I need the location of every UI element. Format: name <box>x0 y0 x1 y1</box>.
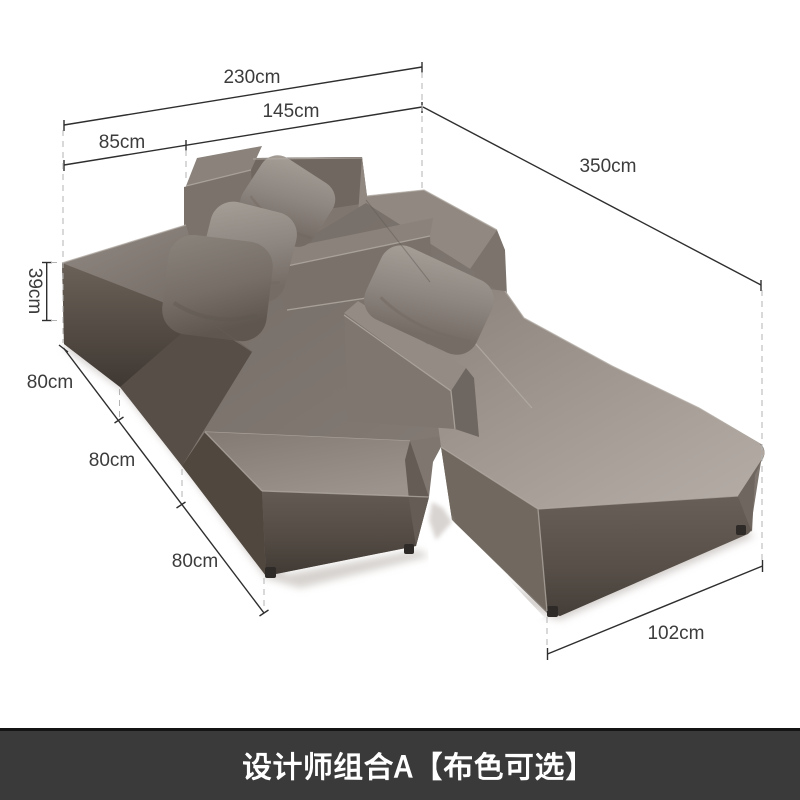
svg-text:102cm: 102cm <box>647 623 704 644</box>
svg-text:230cm: 230cm <box>223 67 280 88</box>
svg-text:350cm: 350cm <box>579 156 636 177</box>
svg-text:85cm: 85cm <box>99 132 145 153</box>
svg-text:80cm: 80cm <box>172 551 218 572</box>
svg-text:80cm: 80cm <box>89 450 135 471</box>
svg-text:39cm: 39cm <box>24 268 45 314</box>
svg-text:80cm: 80cm <box>27 372 73 393</box>
svg-text:145cm: 145cm <box>262 101 319 122</box>
